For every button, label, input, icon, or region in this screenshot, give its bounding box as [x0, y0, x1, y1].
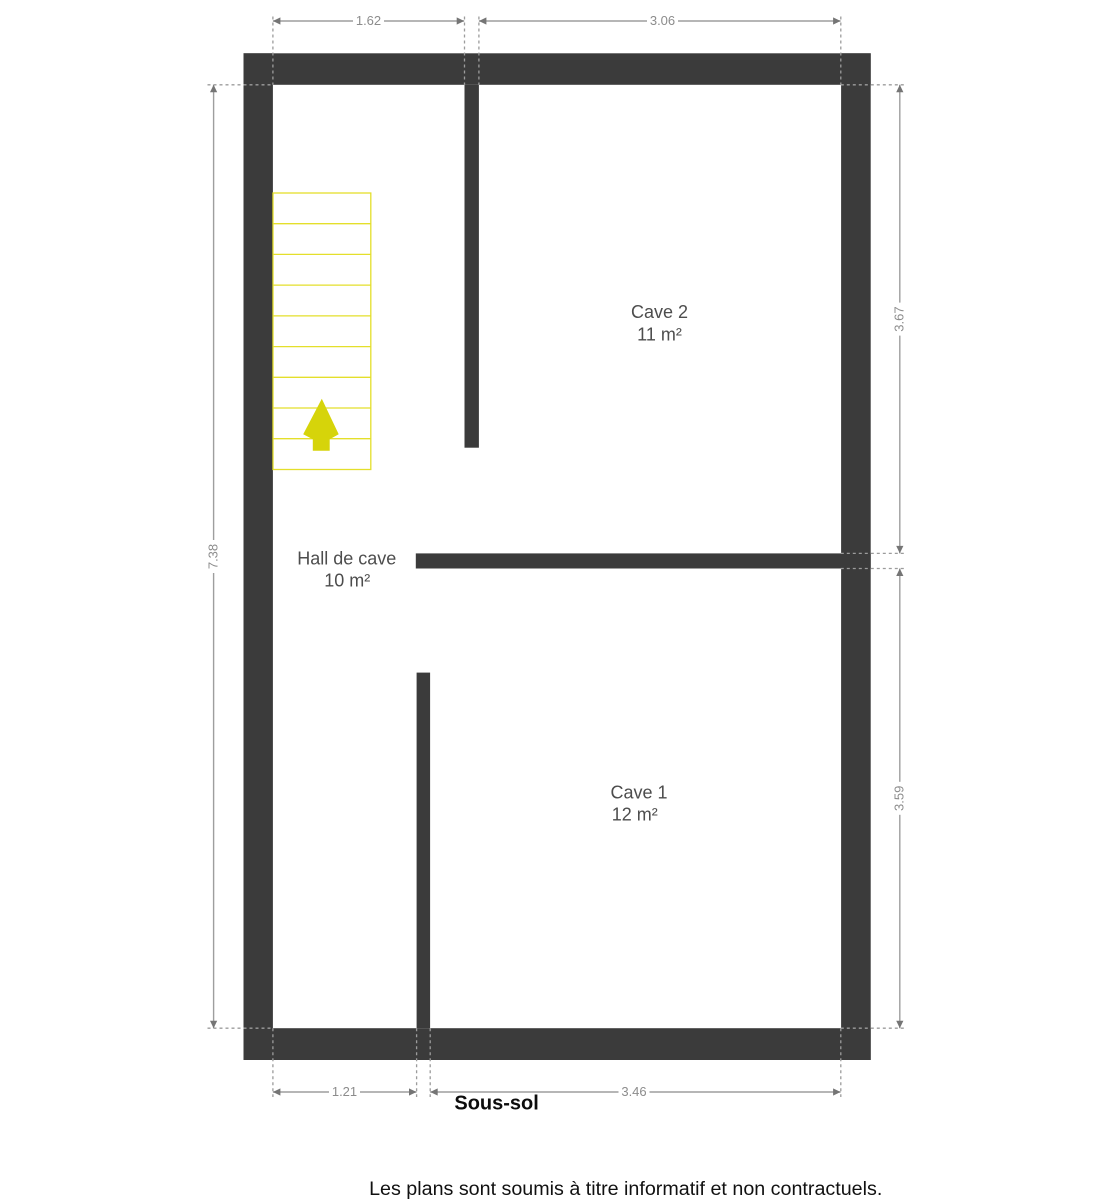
svg-text:Hall de cave: Hall de cave [297, 548, 396, 568]
svg-text:Sous-sol: Sous-sol [454, 1093, 538, 1115]
svg-text:Les plans sont soumis à titre: Les plans sont soumis à titre informatif… [369, 1178, 882, 1200]
svg-text:7.38: 7.38 [206, 544, 221, 569]
svg-text:3.67: 3.67 [892, 306, 907, 331]
svg-text:Cave 2: Cave 2 [631, 302, 688, 322]
svg-text:11 m²: 11 m² [637, 325, 682, 345]
svg-text:3.06: 3.06 [650, 13, 675, 28]
svg-text:10 m²: 10 m² [324, 571, 370, 591]
svg-text:3.46: 3.46 [621, 1084, 646, 1099]
svg-text:12 m²: 12 m² [612, 805, 658, 825]
svg-text:1.21: 1.21 [332, 1084, 357, 1099]
svg-text:3.59: 3.59 [892, 786, 907, 811]
svg-text:1.62: 1.62 [356, 13, 381, 28]
svg-text:Cave 1: Cave 1 [610, 783, 667, 803]
